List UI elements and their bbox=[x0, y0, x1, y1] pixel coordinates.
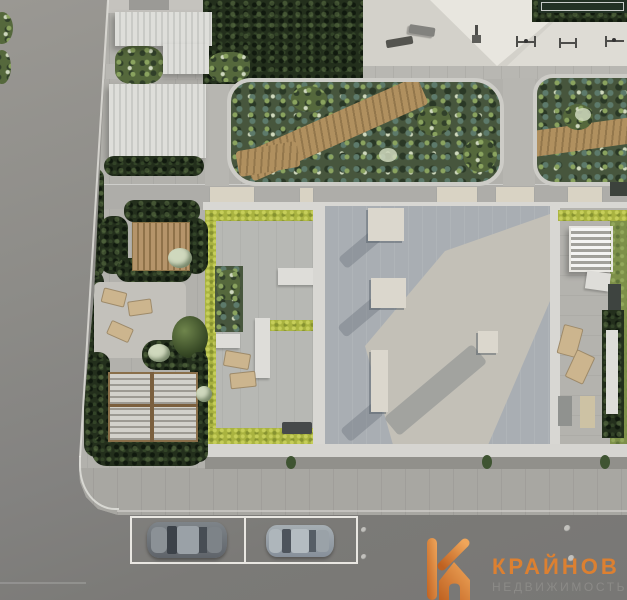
sidewalk bbox=[70, 468, 627, 515]
service-gap bbox=[205, 457, 627, 469]
pullup-bar-post bbox=[516, 36, 518, 47]
canopy-roof-a-step bbox=[163, 44, 209, 74]
parking-divider bbox=[244, 518, 246, 562]
path-vertical bbox=[205, 78, 229, 186]
lime-hedge bbox=[558, 210, 627, 221]
wooden-deck-wing bbox=[235, 141, 301, 177]
car-rear-window bbox=[309, 530, 316, 552]
white-planter bbox=[255, 318, 270, 378]
white-flower-bush bbox=[168, 248, 192, 268]
parapet bbox=[313, 202, 325, 458]
car-roof bbox=[177, 526, 199, 554]
white-flower-bush bbox=[196, 386, 212, 402]
car-1 bbox=[147, 522, 227, 558]
overhanging-tree bbox=[0, 12, 13, 44]
flower-bush bbox=[463, 138, 497, 172]
skylight bbox=[368, 208, 404, 241]
car-hood bbox=[151, 527, 167, 553]
canopy-roof-a bbox=[115, 12, 212, 46]
car-windshield bbox=[282, 529, 291, 553]
gap-plant bbox=[286, 456, 296, 469]
pullup-bar-post bbox=[534, 36, 536, 47]
car-roof bbox=[291, 529, 309, 553]
sports-court bbox=[538, 0, 627, 13]
terrace-bush bbox=[217, 270, 240, 300]
pergola-beam bbox=[150, 372, 154, 442]
garden-shrubs bbox=[124, 200, 200, 222]
pullup-bar-post bbox=[575, 38, 577, 48]
path-vertical bbox=[503, 78, 535, 186]
white-planter bbox=[606, 330, 618, 414]
flower-bushes bbox=[115, 46, 163, 84]
car-2 bbox=[266, 525, 334, 557]
pullup-bar-post bbox=[605, 36, 607, 47]
gap-plant bbox=[600, 455, 610, 469]
skylight bbox=[478, 331, 498, 353]
car-hood bbox=[269, 529, 282, 553]
workout-post-base bbox=[472, 35, 481, 43]
flower-bush bbox=[417, 106, 451, 136]
car-rear-window bbox=[199, 527, 207, 553]
pullup-bar bbox=[560, 42, 576, 44]
parapet-bottom bbox=[205, 444, 627, 457]
planter-1 bbox=[227, 78, 504, 186]
terrace-table bbox=[278, 268, 318, 285]
white-flowers bbox=[575, 108, 591, 121]
planter-2 bbox=[533, 74, 627, 186]
small-roof bbox=[129, 0, 169, 10]
skylight bbox=[371, 350, 388, 412]
court-line bbox=[541, 2, 624, 11]
overhanging-tree bbox=[0, 50, 11, 84]
flower-bushes bbox=[208, 52, 250, 82]
aerial-render-scene: КРАЙНОВ НЕДВИЖИМОСТЬ bbox=[0, 0, 627, 600]
skylight bbox=[371, 278, 406, 308]
canopy-roof-b bbox=[109, 84, 206, 158]
ac-unit bbox=[608, 284, 621, 310]
car-trunk bbox=[316, 530, 329, 552]
white-flowers bbox=[379, 148, 397, 162]
grill bbox=[282, 422, 312, 434]
courtyard bbox=[0, 0, 627, 515]
manhole-cover bbox=[564, 525, 571, 532]
gap-plant bbox=[482, 455, 492, 469]
beige-mat bbox=[580, 396, 595, 428]
terrace-pad bbox=[216, 334, 240, 348]
curb-line-bottom bbox=[117, 510, 627, 512]
building-roof bbox=[325, 206, 550, 452]
car-windshield bbox=[167, 526, 177, 554]
garden-shrubs bbox=[104, 156, 204, 176]
pullup-bar-post bbox=[559, 38, 561, 48]
sun-lounger bbox=[229, 371, 257, 390]
gray-mat bbox=[558, 396, 572, 426]
road-marking-line bbox=[0, 582, 86, 584]
curb-corner-arc bbox=[79, 456, 119, 510]
manhole-cover bbox=[361, 527, 367, 533]
manhole-cover bbox=[361, 554, 367, 560]
lime-hedge bbox=[270, 320, 315, 331]
k-house-icon bbox=[424, 536, 476, 600]
lime-hedge bbox=[205, 210, 315, 221]
brand-subtitle: НЕДВИЖИМОСТЬ bbox=[492, 581, 627, 593]
pullup-bar-center bbox=[612, 38, 616, 42]
pergola-beam bbox=[108, 404, 198, 407]
car-trunk bbox=[207, 527, 222, 553]
pullup-bar-center bbox=[524, 39, 528, 43]
ac-unit bbox=[610, 182, 627, 196]
flower-bush bbox=[291, 86, 327, 112]
white-flower-bush bbox=[148, 344, 170, 362]
pergola-frame bbox=[569, 226, 613, 272]
watermark-logo: КРАЙНОВ НЕДВИЖИМОСТЬ bbox=[415, 534, 627, 600]
brand-name: КРАЙНОВ bbox=[492, 556, 627, 578]
garden-tree bbox=[172, 316, 208, 358]
